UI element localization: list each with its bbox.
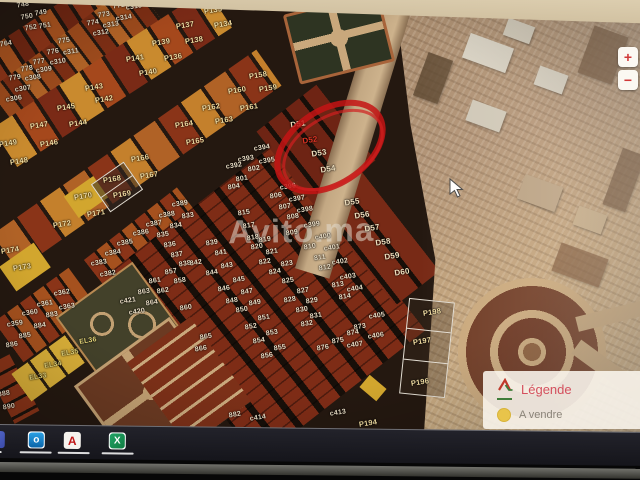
- parcel-label: 828: [283, 296, 296, 305]
- parcel-label: 814: [338, 293, 351, 302]
- parcel-label: 858: [173, 277, 186, 286]
- parcel-label: P170: [73, 190, 93, 202]
- parcel-label: 835: [156, 231, 169, 240]
- parcel-label: 811: [314, 254, 327, 263]
- running-app-indicator: [102, 452, 134, 454]
- parcel-label: c383: [90, 258, 107, 267]
- parcel-label: c360: [21, 308, 38, 317]
- parcel-label: c362: [53, 288, 70, 297]
- parcel-label: c406: [367, 331, 384, 340]
- parcel-label: P159: [258, 82, 278, 94]
- parcel-label: 776: [46, 48, 59, 57]
- parcel-label: c397: [288, 194, 305, 203]
- taskbar-app-icon[interactable]: [0, 431, 5, 448]
- parcel-label: 834: [169, 222, 182, 231]
- parcel-label: 866: [194, 345, 207, 354]
- parcel-label: P161: [239, 101, 259, 113]
- parcel-label: 822: [258, 258, 271, 267]
- parcel-label: 815: [237, 209, 250, 218]
- parcel-label: 821: [265, 248, 278, 257]
- parcel-label: c401: [323, 243, 340, 252]
- parcel-label: 851: [257, 314, 270, 323]
- screen-photo: Avito.ma 7367487497507517527647727737747…: [0, 0, 640, 480]
- parcel-label: 836: [163, 241, 176, 250]
- running-app-indicator: [58, 452, 90, 454]
- parcel-label: D60: [394, 266, 411, 277]
- parcel-label: 773: [97, 11, 110, 20]
- parcel-label: P167: [139, 169, 159, 181]
- parcel-label: c395: [258, 156, 275, 165]
- running-app-indicator: [0, 451, 2, 453]
- parcel-label: 844: [205, 269, 218, 278]
- parcel-label: 864: [145, 299, 158, 308]
- excel-icon[interactable]: X: [109, 432, 126, 449]
- parcel-label: c384: [104, 248, 121, 257]
- legend-title: Légende: [521, 382, 572, 397]
- parcel-label: c414: [249, 413, 266, 422]
- parcel-label: 807: [278, 203, 291, 212]
- parcel-label: 830: [295, 306, 308, 315]
- parcel-label: 764: [0, 40, 13, 49]
- parcel-label: c386: [132, 228, 149, 237]
- parcel-label: 848: [225, 297, 238, 306]
- parcel-label: c359: [6, 319, 23, 328]
- parcel-label: D58: [375, 236, 392, 247]
- parcel-label: 820: [250, 243, 263, 252]
- parcel-label: 874: [346, 329, 359, 338]
- parcel-label: 861: [148, 277, 161, 286]
- parcel-label: 802: [247, 165, 260, 174]
- running-app-indicator: [20, 451, 52, 453]
- parcel-label: 806: [269, 192, 282, 201]
- zoom-out-button[interactable]: −: [618, 70, 638, 90]
- parcel-label: c389: [171, 199, 188, 208]
- parcel-label: c314: [115, 13, 132, 22]
- parcel-label: 852: [244, 323, 257, 332]
- parcel-label: c394: [253, 143, 270, 152]
- parcel-label: P146: [39, 137, 59, 149]
- parcel-label: P173: [12, 261, 32, 273]
- parcel-label: P144: [68, 117, 88, 129]
- taskbar: o A X: [0, 424, 640, 466]
- parcel-label: 884: [33, 322, 46, 331]
- parcel-label: P141: [125, 52, 145, 64]
- parcel-label: c399: [303, 220, 320, 229]
- parcel-label: c363: [58, 302, 75, 311]
- parcel-label: 846: [217, 285, 230, 294]
- parcel-label: 860: [179, 304, 192, 313]
- parcel-label: D56: [354, 209, 371, 220]
- parcel-label: 824: [268, 268, 281, 277]
- parcel-label: P137: [175, 19, 195, 31]
- parcel-label: c402: [331, 257, 348, 266]
- parcel-label: EL35: [61, 348, 79, 358]
- parcel-label: 804: [227, 183, 240, 192]
- parcel-label: 749: [34, 9, 47, 18]
- parcel-label: c421: [119, 296, 136, 305]
- parcel-label: P149: [0, 137, 18, 149]
- parcel-label: 857: [164, 268, 177, 277]
- zoom-in-button[interactable]: +: [618, 47, 638, 67]
- parcel-label: 832: [300, 320, 313, 329]
- parcel-label: 850: [235, 306, 248, 315]
- parcel-label: 886: [5, 341, 18, 350]
- parcel-label: 813: [331, 281, 344, 290]
- parcel-label: P140: [138, 66, 158, 78]
- parcel-label: 854: [252, 337, 265, 346]
- parcel-label: c420: [128, 307, 145, 316]
- parcel-label: 839: [205, 239, 218, 248]
- parcel-label: c407: [346, 340, 363, 349]
- parcel-label: c396: [279, 182, 296, 191]
- parcel-label: 882: [228, 411, 241, 420]
- parcel-label: P147: [29, 119, 49, 131]
- parcel-label: 810: [303, 243, 316, 252]
- parcel-label: EL36: [79, 336, 97, 346]
- parcel-label: P172: [52, 218, 72, 230]
- parcel-label: D53: [311, 147, 328, 158]
- parcel-label: D57: [364, 222, 381, 233]
- parcel-label: 779: [8, 74, 21, 83]
- parcel-label: P136: [163, 51, 183, 63]
- parcel-label: D59: [384, 250, 401, 261]
- parcel-label: P158: [248, 69, 268, 81]
- parcel-label: D52: [302, 134, 319, 145]
- parcel-label: P165: [185, 135, 205, 147]
- parcel-label: P139: [151, 36, 171, 48]
- parcel-label: P171: [86, 207, 106, 219]
- parcel-label: 845: [232, 276, 245, 285]
- parcel-label: 847: [240, 288, 253, 297]
- parcel-label: P166: [130, 152, 150, 164]
- parcel-label: P174: [0, 244, 20, 256]
- for-sale-swatch: [497, 408, 511, 422]
- parcel-label: P160: [227, 84, 247, 96]
- parcel-label: 885: [18, 332, 31, 341]
- parcel-label: c361: [36, 299, 53, 308]
- parcel-label: 809: [285, 229, 298, 238]
- parcel-label: P164: [174, 118, 194, 130]
- parcel-label: P168: [102, 173, 122, 185]
- parcel-label: P194: [358, 417, 378, 429]
- parcel-label: 849: [248, 299, 261, 308]
- legend-panel: Légende A vendre: [483, 371, 640, 429]
- parcel-label: D55: [344, 196, 361, 207]
- parcel-label: 812: [318, 264, 331, 273]
- legend-item-label: A vendre: [519, 409, 562, 421]
- parcel-label: c385: [116, 238, 133, 247]
- parcel-label: c307: [14, 84, 31, 93]
- parcel-label: c398: [296, 205, 313, 214]
- parcel-label: P143: [84, 81, 104, 93]
- parcel-label: P138: [184, 34, 204, 46]
- parcel-label: c392: [225, 161, 242, 170]
- parcel-label: 843: [220, 262, 233, 271]
- parcel-label: c306: [5, 94, 22, 103]
- parcel-label: 875: [331, 337, 344, 346]
- parcel-label: 833: [181, 212, 194, 221]
- parcel-label: 823: [280, 260, 293, 269]
- parcel-label: P162: [201, 101, 221, 113]
- parcel-label: P148: [9, 155, 29, 167]
- parcel-label: c310: [49, 57, 66, 66]
- parcel-label: 853: [265, 329, 278, 338]
- parcel-label: 837: [170, 251, 183, 260]
- parcel-label: 841: [214, 249, 227, 258]
- parcel-label: 778: [20, 65, 33, 74]
- parcel-label: c382: [99, 269, 116, 278]
- parcel-label: 752: [24, 24, 37, 33]
- parcel-label: 862: [156, 287, 169, 296]
- parcel-label: 890: [2, 403, 15, 412]
- outlook-icon[interactable]: o: [28, 431, 45, 448]
- parcel-label: P169: [112, 188, 132, 200]
- parcel-label: c312: [92, 28, 109, 37]
- parcel-label: 774: [86, 19, 99, 28]
- parcel-label: c308: [24, 73, 41, 82]
- map-viewport[interactable]: Avito.ma 7367487497507517527647727737747…: [0, 0, 640, 448]
- parcel-label: P134: [213, 18, 233, 30]
- parcel-label: c405: [368, 311, 385, 320]
- parcel-label: 750: [20, 13, 33, 22]
- parcel-label: P145: [56, 101, 76, 113]
- parcel-label: 829: [305, 297, 318, 306]
- parcel-label: 817: [242, 222, 255, 231]
- parcel-label: P142: [94, 93, 114, 105]
- autocad-icon[interactable]: A: [64, 432, 81, 449]
- legend-item: A vendre: [497, 408, 635, 422]
- parcel-label: 775: [57, 37, 70, 46]
- parcel-label: 777: [32, 58, 45, 67]
- parcel-label: 865: [199, 333, 212, 342]
- parcel-label: EL33: [29, 372, 47, 382]
- parcel-label: D51: [290, 118, 307, 129]
- parcel-label: EL34: [44, 360, 62, 370]
- parcel-label: P163: [214, 114, 234, 126]
- parcel-label: 827: [296, 287, 309, 296]
- parcel-label: 842: [189, 259, 202, 268]
- parcel-label: 855: [273, 344, 286, 353]
- parcel-label: 856: [260, 352, 273, 361]
- parcel-label: 863: [137, 288, 150, 297]
- parcel-label: D54: [320, 163, 337, 174]
- map-zoom-controls: + −: [618, 47, 639, 93]
- parcel-label: 825: [281, 277, 294, 286]
- parcel-label: 751: [38, 22, 51, 31]
- parcel-label: c400: [314, 232, 331, 241]
- parcel-label: 883: [45, 311, 58, 320]
- parcel-label: 808: [286, 213, 299, 222]
- parcel-label: 888: [0, 390, 11, 399]
- al-omrane-logo: [497, 378, 514, 400]
- parcel-label: c413: [329, 408, 346, 417]
- parcel-label: c311: [63, 47, 80, 56]
- parcel-label: 876: [316, 344, 329, 353]
